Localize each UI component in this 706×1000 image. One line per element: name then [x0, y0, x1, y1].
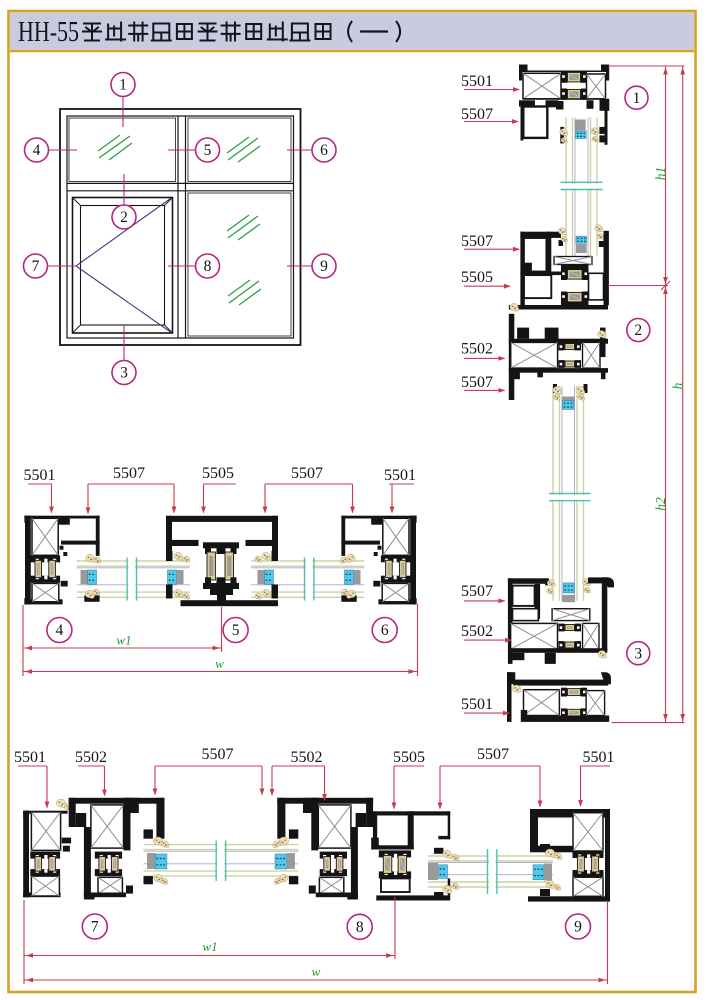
svg-text:4: 4 — [33, 142, 41, 159]
svg-text:4: 4 — [56, 622, 64, 639]
svg-text:5501: 5501 — [461, 73, 493, 90]
svg-text:w1: w1 — [202, 939, 217, 954]
svg-text:7: 7 — [91, 919, 99, 936]
svg-text:5507: 5507 — [461, 374, 493, 391]
svg-text:w1: w1 — [116, 633, 131, 648]
svg-text:h: h — [670, 382, 685, 389]
svg-text:5501: 5501 — [24, 467, 56, 484]
svg-text:w: w — [312, 964, 321, 979]
svg-text:HH-55: HH-55 — [18, 17, 79, 48]
svg-text:5: 5 — [232, 622, 240, 639]
svg-text:9: 9 — [320, 258, 328, 275]
svg-text:9: 9 — [574, 919, 582, 936]
svg-text:2: 2 — [634, 322, 642, 339]
svg-text:5502: 5502 — [291, 749, 323, 766]
svg-text:1: 1 — [633, 90, 641, 107]
svg-text:5507: 5507 — [113, 465, 145, 482]
svg-text:3: 3 — [120, 365, 128, 382]
svg-text:5507: 5507 — [291, 465, 323, 482]
svg-text:3: 3 — [634, 645, 642, 662]
svg-text:5501: 5501 — [583, 749, 615, 766]
svg-text:5507: 5507 — [477, 746, 509, 763]
svg-text:5502: 5502 — [461, 623, 493, 640]
svg-text:5502: 5502 — [461, 341, 493, 358]
svg-text:5505: 5505 — [202, 465, 234, 482]
svg-text:w: w — [215, 656, 224, 671]
svg-text:8: 8 — [356, 919, 364, 936]
svg-text:h1: h1 — [653, 167, 668, 181]
svg-text:5507: 5507 — [202, 746, 234, 763]
svg-text:h2: h2 — [653, 497, 668, 511]
svg-text:5502: 5502 — [75, 749, 107, 766]
svg-text:6: 6 — [381, 622, 389, 639]
svg-text:5505: 5505 — [461, 269, 493, 286]
svg-text:2: 2 — [120, 209, 128, 226]
svg-text:6: 6 — [320, 142, 328, 159]
svg-text:5507: 5507 — [461, 106, 493, 123]
svg-text:5: 5 — [204, 142, 212, 159]
svg-text:5507: 5507 — [461, 583, 493, 600]
svg-text:8: 8 — [204, 258, 212, 275]
svg-text:5505: 5505 — [393, 749, 425, 766]
svg-text:5501: 5501 — [14, 749, 46, 766]
svg-text:5501: 5501 — [384, 467, 416, 484]
svg-text:5501: 5501 — [461, 696, 493, 713]
svg-text:1: 1 — [119, 77, 127, 94]
svg-text:7: 7 — [32, 258, 40, 275]
svg-text:5507: 5507 — [461, 233, 493, 250]
